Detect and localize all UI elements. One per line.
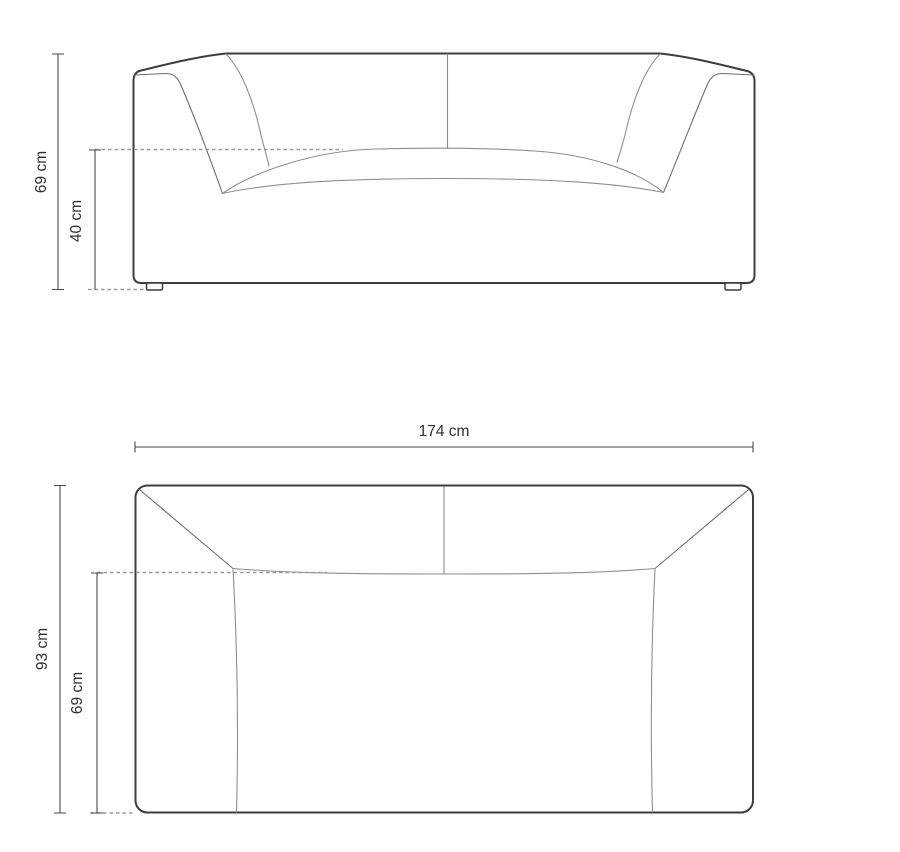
dimension-front-overall-height: 69 cm — [33, 54, 64, 290]
dimension-line — [135, 442, 753, 453]
dimension-line — [89, 150, 101, 290]
front-seat-front-seam — [223, 179, 664, 194]
front-seat-top-seam — [223, 148, 664, 193]
front-left-arm-seam — [134, 74, 223, 194]
top-left-seat-seam — [233, 569, 237, 813]
front-right-arm-seam — [664, 74, 755, 193]
dimension-line — [54, 486, 66, 814]
front-right-foot — [725, 283, 741, 290]
dimension-label-top-overall-depth: 93 cm — [34, 628, 51, 670]
sofa-dimension-diagram: 69 cm 40 cm 174 cm — [0, 0, 900, 852]
dimension-top-seat-depth: 69 cm — [69, 573, 103, 813]
dimension-front-seat-height: 40 cm — [68, 150, 101, 290]
front-right-back-cushion-seam — [617, 54, 660, 162]
dimension-top-overall-depth: 93 cm — [34, 486, 66, 814]
dimension-top-overall-width: 174 cm — [135, 423, 753, 453]
dimension-label-top-overall-width: 174 cm — [419, 423, 470, 440]
diagram-svg: 69 cm 40 cm 174 cm — [0, 0, 900, 852]
top-right-diagonal-seam — [655, 490, 748, 569]
sofa-top-view: 174 cm 93 cm — [34, 423, 753, 813]
front-body-outline — [134, 54, 755, 284]
dimension-label-top-seat-depth: 69 cm — [69, 672, 86, 714]
dimension-line — [91, 573, 103, 813]
top-right-seat-seam — [651, 569, 655, 813]
sofa-front-view: 69 cm 40 cm — [33, 54, 754, 291]
dimension-label-front-seat-height: 40 cm — [68, 200, 85, 242]
front-left-foot — [147, 283, 163, 290]
dimension-line — [52, 54, 64, 290]
top-left-diagonal-seam — [140, 490, 233, 569]
dimension-label-front-overall-height: 69 cm — [33, 151, 50, 193]
